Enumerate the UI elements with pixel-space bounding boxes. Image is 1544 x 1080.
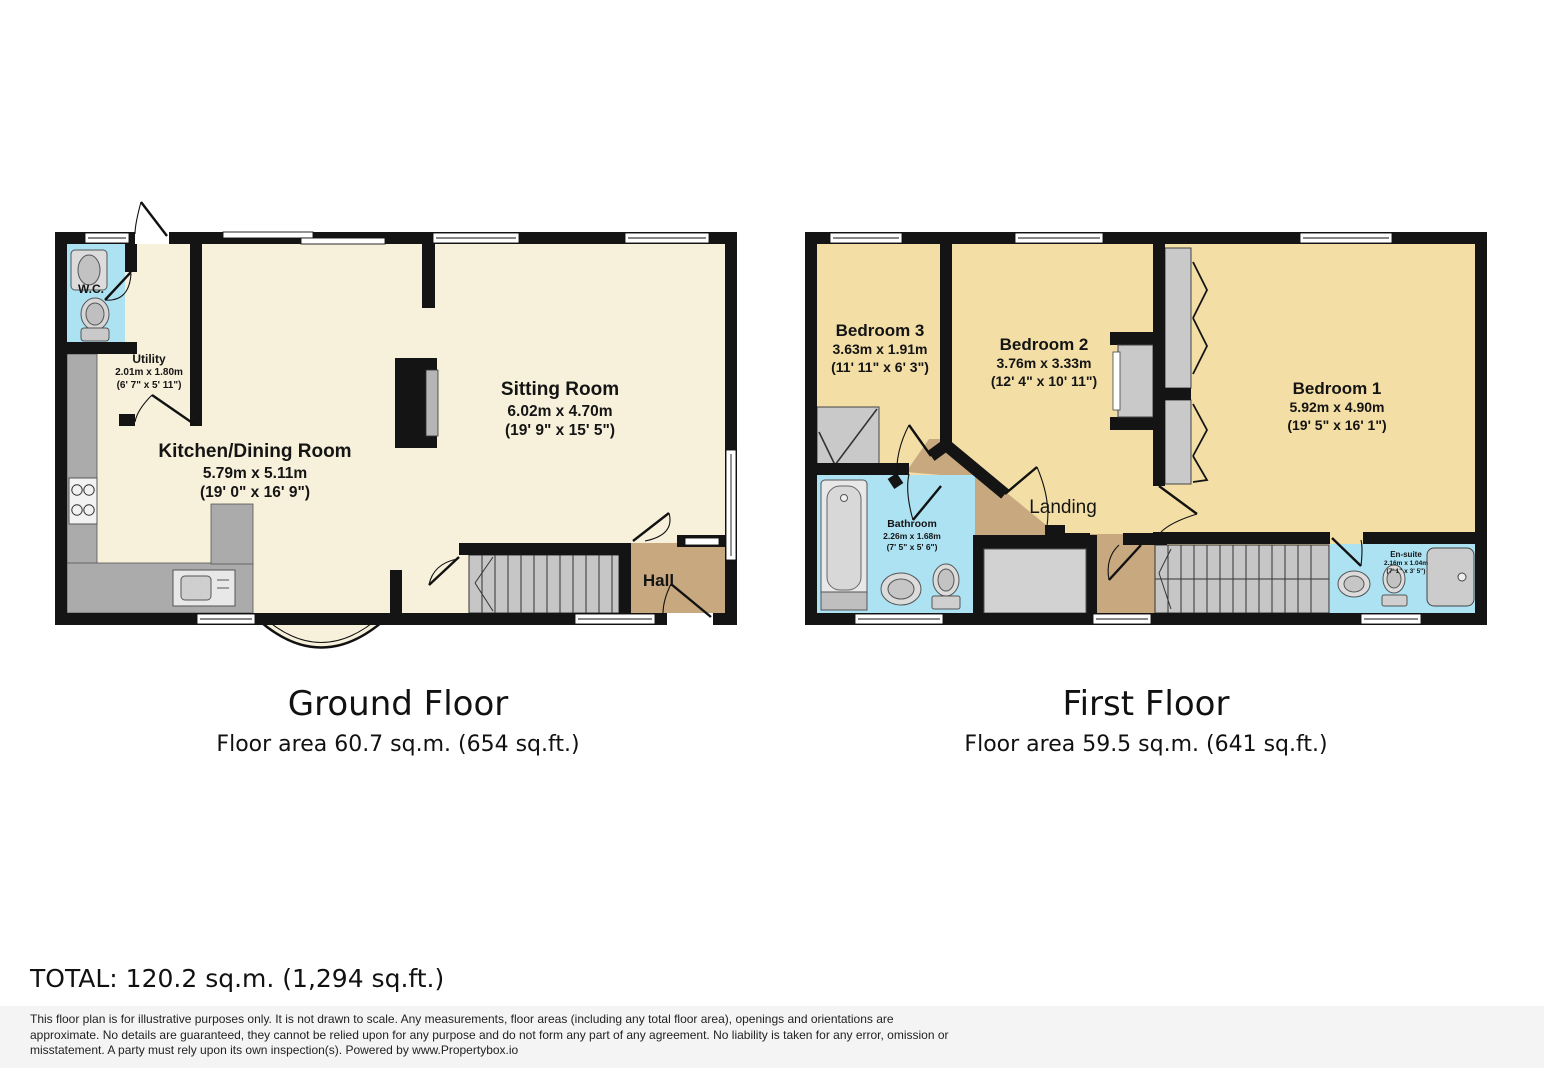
bathroom-toilet-icon bbox=[932, 564, 960, 609]
first-floor-title-block: First Floor Floor area 59.5 sq.m. (641 s… bbox=[896, 684, 1396, 757]
hob-icon bbox=[69, 478, 97, 524]
disclaimer-line-2: approximate. No details are guaranteed, … bbox=[30, 1028, 949, 1044]
first-floor-area-text: Floor area 59.5 sq.m. (641 sq.ft.) bbox=[896, 732, 1396, 757]
utility-label: Utility 2.01m x 1.80m (6' 7" x 5' 11") bbox=[88, 352, 210, 392]
ground-floor-area-text: Floor area 60.7 sq.m. (654 sq.ft.) bbox=[148, 732, 648, 757]
bathroom-sink-icon bbox=[881, 573, 921, 605]
first-floor-plan: Bedroom 3 3.63m x 1.91m (11' 11" x 6' 3"… bbox=[805, 232, 1487, 625]
kitchen-label: Kitchen/Dining Room 5.79m x 5.11m (19' 0… bbox=[135, 440, 375, 503]
ground-floor-plan: W.C. Utility 2.01m x 1.80m (6' 7" x 5' 1… bbox=[55, 232, 737, 625]
ensuite-label: En-suite 2.16m x 1.04m (7' 1" x 3' 5") bbox=[1361, 550, 1451, 576]
fireplace-icon bbox=[395, 358, 438, 448]
bathroom-label: Bathroom 2.26m x 1.68m (7' 5" x 5' 6") bbox=[857, 518, 967, 552]
ground-stairs bbox=[469, 555, 619, 613]
landing-label: Landing bbox=[993, 496, 1133, 520]
wc-label: W.C. bbox=[69, 282, 113, 297]
wc-name: W.C. bbox=[69, 282, 113, 297]
disclaimer-line-3: misstatement. A party must rely upon its… bbox=[30, 1043, 949, 1059]
ground-floor-title-block: Ground Floor Floor area 60.7 sq.m. (654 … bbox=[148, 684, 648, 757]
first-floor-title: First Floor bbox=[896, 684, 1396, 724]
landing-cupboard-icon bbox=[973, 535, 1097, 613]
bedroom3-label: Bedroom 3 3.63m x 1.91m (11' 11" x 6' 3"… bbox=[815, 320, 945, 376]
bedroom1-label: Bedroom 1 5.92m x 4.90m (19' 5" x 16' 1"… bbox=[1222, 378, 1452, 434]
ground-floor-title: Ground Floor bbox=[148, 684, 648, 724]
disclaimer-text: This floor plan is for illustrative purp… bbox=[30, 1012, 949, 1059]
disclaimer-line-1: This floor plan is for illustrative purp… bbox=[30, 1012, 949, 1028]
hall-label: Hall bbox=[611, 570, 706, 591]
bedroom3-wardrobe-icon bbox=[817, 407, 879, 467]
bedroom2-label: Bedroom 2 3.76m x 3.33m (12' 4" x 10' 11… bbox=[944, 334, 1144, 390]
total-area-text: TOTAL: 120.2 sq.m. (1,294 sq.ft.) bbox=[30, 964, 444, 993]
floorplan-page: W.C. Utility 2.01m x 1.80m (6' 7" x 5' 1… bbox=[0, 0, 1544, 1080]
kitchen-sink-icon bbox=[173, 570, 235, 606]
first-floor-stairs bbox=[1155, 545, 1329, 613]
sitting-room-label: Sitting Room 6.02m x 4.70m (19' 9" x 15'… bbox=[440, 378, 680, 441]
wc-toilet-icon bbox=[81, 298, 109, 341]
